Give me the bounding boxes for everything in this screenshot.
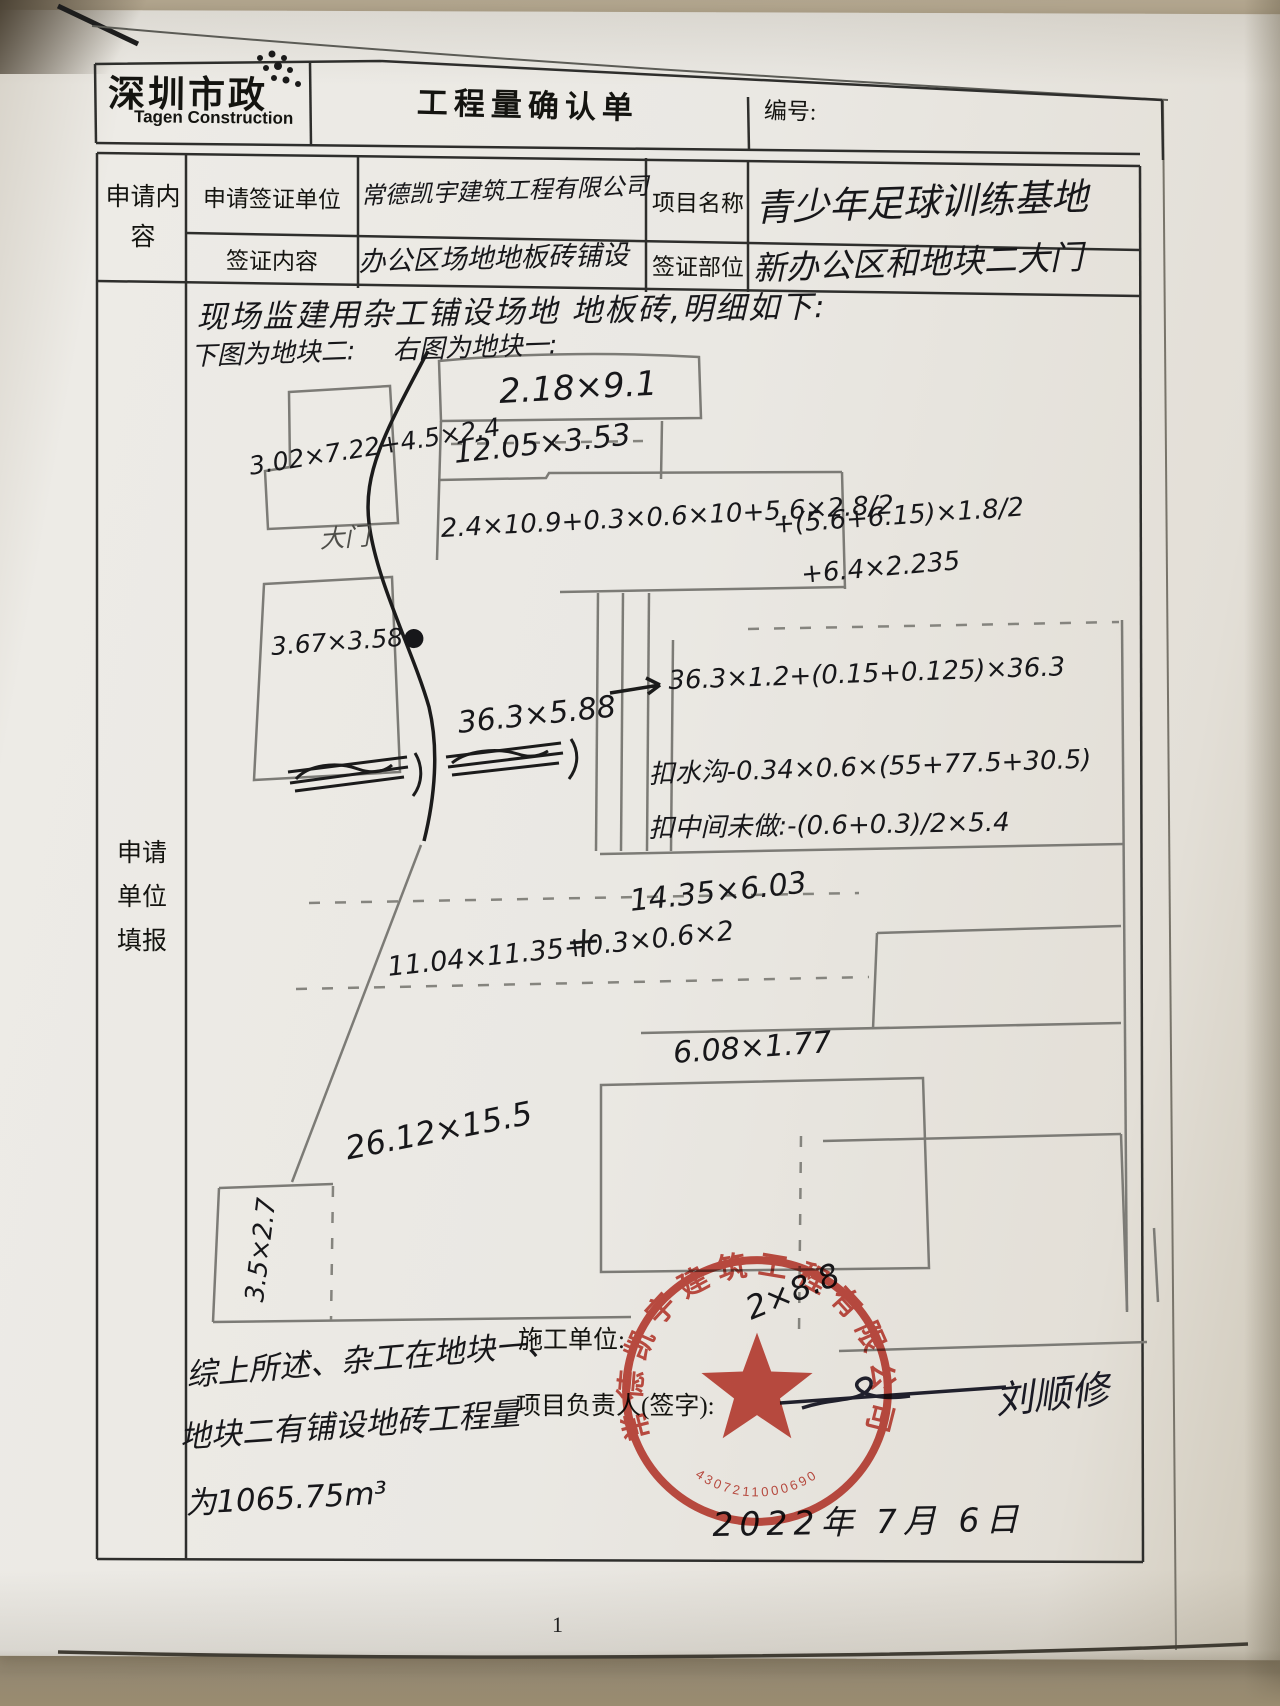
- row-group-label-fill: 申请单位填报: [106, 832, 178, 964]
- dim-top-rect: 2.18×9.1: [498, 364, 658, 412]
- field-value-visa-content: 办公区场地地板砖铺设: [358, 233, 629, 279]
- stamp-star-icon: [701, 1333, 812, 1439]
- scanned-form-photo: 深圳市政 Tagen Construction 工程量确认单 编号: 申请内容 …: [0, 0, 1280, 1706]
- svg-text:4307211000690: 4307211000690: [693, 1466, 821, 1499]
- field-label-apply-unit: 申请签证单位: [192, 179, 352, 215]
- page-number: 1: [552, 1612, 563, 1638]
- photo-right-edge: [1244, 0, 1280, 1706]
- stamp-serial-number: 4307211000690: [693, 1466, 821, 1499]
- company-stamp: 常德凯宇建筑工程有限公司 4307211000690: [606, 1240, 908, 1542]
- field-label-visa-content: 签证内容: [192, 241, 352, 277]
- form-number-label: 编号:: [764, 91, 817, 126]
- dim-deduct-middle: 扣中间未做:-(0.6+0.3)/2×5.4: [648, 802, 1010, 845]
- caption-plot1: 右图为地块一:: [392, 324, 558, 367]
- company-logo-subtext: Tagen Construction: [134, 107, 293, 129]
- photo-bottom-edge: [0, 1650, 1280, 1706]
- field-label-visa-location: 签证部位: [650, 247, 746, 282]
- field-label-project-name: 项目名称: [650, 183, 746, 218]
- gate-label: 大门: [318, 517, 370, 556]
- row-group-label-request: 申请内容: [104, 178, 182, 258]
- caption-plot2: 下图为地块二:: [190, 330, 356, 373]
